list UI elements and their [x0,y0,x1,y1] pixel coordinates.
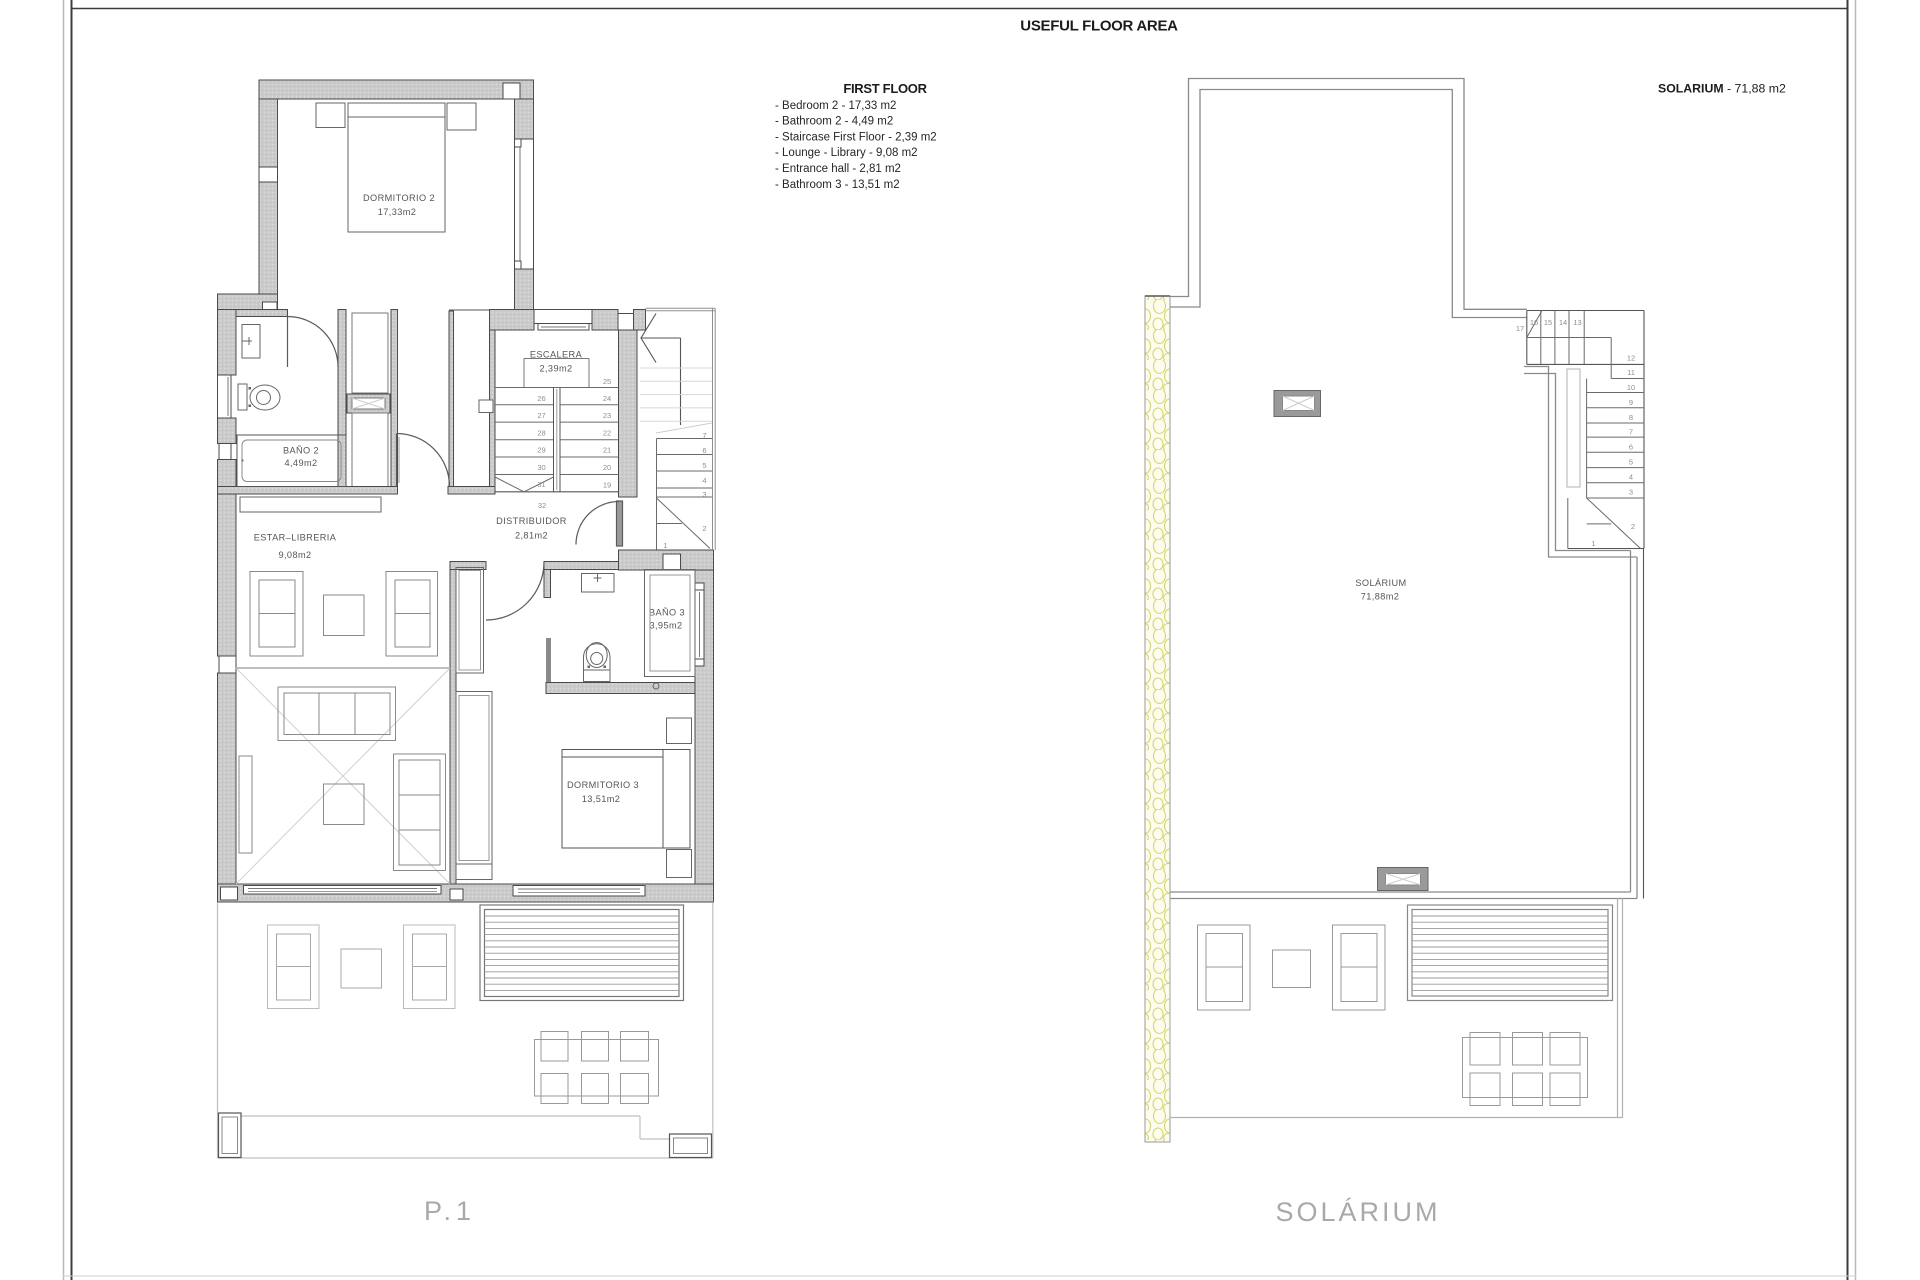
svg-text:19: 19 [603,481,611,490]
svg-text:4: 4 [702,476,706,485]
svg-text:14: 14 [1559,318,1567,327]
svg-text:5: 5 [1629,458,1633,467]
svg-text:6: 6 [702,446,706,455]
svg-text:30: 30 [537,463,545,472]
svg-text:21: 21 [603,446,611,455]
svg-text:ESTAR–LIBRERIA: ESTAR–LIBRERIA [254,533,337,543]
svg-text:- Bathroom 2 - 4,49 m2: - Bathroom 2 - 4,49 m2 [775,116,893,128]
svg-text:5: 5 [702,461,706,470]
svg-text:25: 25 [603,377,611,386]
svg-text:- Staircase First Floor - 2,39: - Staircase First Floor - 2,39 m2 [775,132,937,144]
svg-text:- Bedroom 2 - 17,33 m2: - Bedroom 2 - 17,33 m2 [775,100,896,112]
svg-text:3,95m2: 3,95m2 [649,621,682,631]
svg-text:24: 24 [603,394,611,403]
svg-text:3: 3 [702,490,706,499]
svg-text:22: 22 [603,429,611,438]
svg-text:17: 17 [1516,324,1524,333]
svg-text:6: 6 [1629,443,1633,452]
svg-text:23: 23 [603,411,611,420]
svg-text:2,39m2: 2,39m2 [539,364,572,374]
svg-text:15: 15 [1544,318,1552,327]
svg-text:31: 31 [537,480,545,489]
svg-text:9: 9 [1629,398,1633,407]
svg-text:9,08m2: 9,08m2 [278,550,311,560]
svg-text:USEFUL FLOOR AREA: USEFUL FLOOR AREA [1020,18,1178,35]
svg-text:*: * [241,458,244,467]
svg-text:71,88m2: 71,88m2 [1361,592,1400,602]
svg-text:SOLARIUM - 71,88 m2: SOLARIUM - 71,88 m2 [1658,82,1786,96]
svg-text:2: 2 [702,524,706,533]
svg-text:3: 3 [1629,488,1633,497]
svg-text:SOLÁRIUM: SOLÁRIUM [1355,578,1406,588]
svg-text:BAÑO 3: BAÑO 3 [649,608,685,618]
svg-text:BAÑO 2: BAÑO 2 [283,446,319,456]
svg-text:2,81m2: 2,81m2 [515,531,548,541]
svg-text:20: 20 [603,463,611,472]
svg-text:8: 8 [1629,413,1633,422]
svg-text:26: 26 [537,394,545,403]
svg-text:27: 27 [537,411,545,420]
svg-text:29: 29 [537,446,545,455]
svg-text:DISTRIBUIDOR: DISTRIBUIDOR [496,516,567,526]
svg-text:2: 2 [1631,522,1635,531]
svg-text:- Lounge - Library - 9,08 m2: - Lounge - Library - 9,08 m2 [775,147,918,159]
svg-text:17,33m2: 17,33m2 [378,207,417,217]
svg-text:32: 32 [538,501,546,510]
svg-text:10: 10 [1627,383,1635,392]
svg-text:13: 13 [1573,318,1581,327]
svg-text:12: 12 [1627,354,1635,363]
svg-text:4,49m2: 4,49m2 [284,458,317,468]
svg-text:4: 4 [1629,473,1633,482]
svg-text:16: 16 [1530,318,1538,327]
svg-text:- Entrance hall - 2,81 m2: - Entrance hall - 2,81 m2 [775,163,901,175]
svg-text:DORMITORIO 2: DORMITORIO 2 [363,193,435,203]
svg-text:13,51m2: 13,51m2 [582,794,621,804]
svg-text:7: 7 [702,431,706,440]
svg-text:11: 11 [1627,368,1635,377]
svg-text:SOLÁRIUM: SOLÁRIUM [1275,1197,1440,1227]
svg-text:- Bathroom 3 - 13,51 m2: - Bathroom 3 - 13,51 m2 [775,179,900,191]
svg-text:P.1: P.1 [424,1196,476,1226]
svg-text:DORMITORIO 3: DORMITORIO 3 [567,780,639,790]
svg-text:1: 1 [1591,539,1595,548]
svg-text:1: 1 [663,541,667,550]
svg-text:FIRST FLOOR: FIRST FLOOR [843,81,927,96]
svg-text:28: 28 [537,429,545,438]
svg-text:7: 7 [1629,428,1633,437]
